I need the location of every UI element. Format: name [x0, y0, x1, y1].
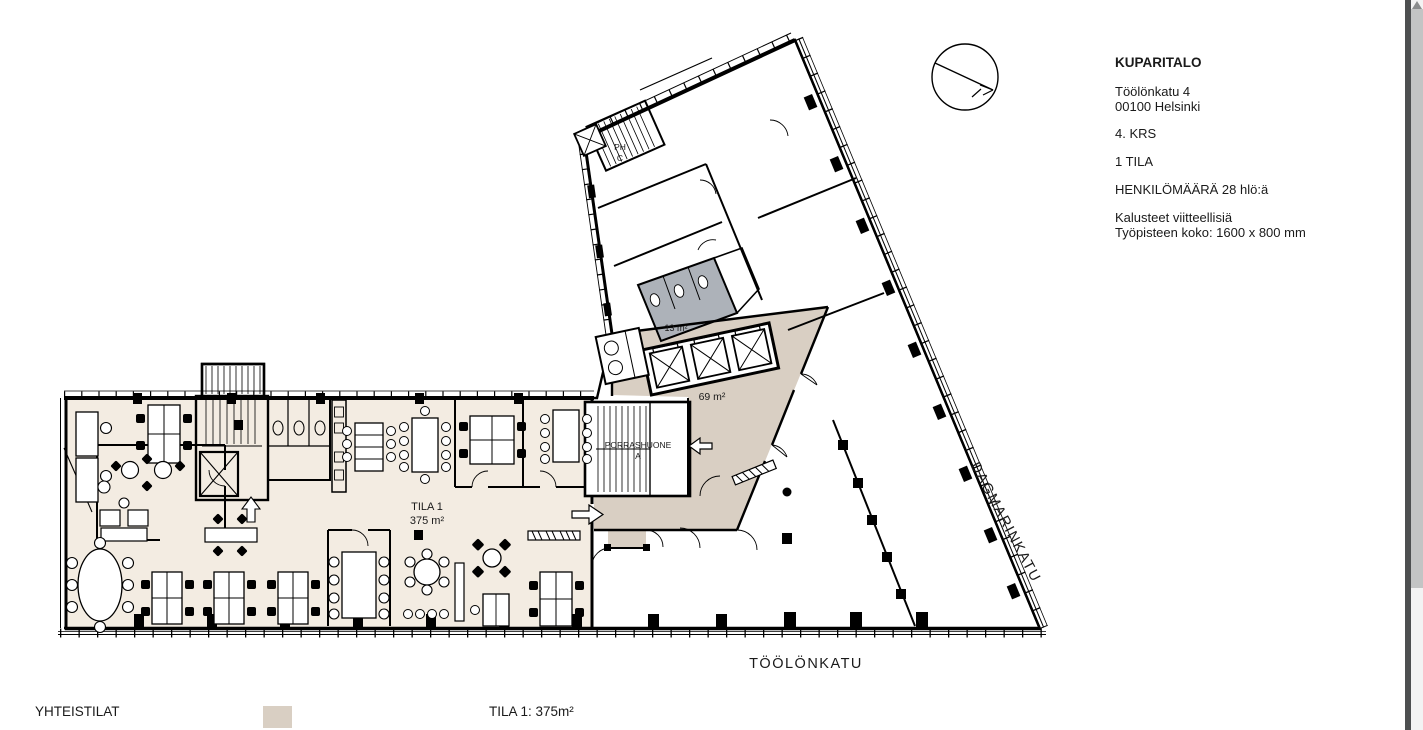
tila1-area-label: 375 m² — [410, 515, 445, 527]
workstation-size-note: Työpisteen koko: 1600 x 800 mm — [1115, 225, 1306, 240]
meeting-table — [541, 410, 592, 464]
wc-area-label: 13 m² — [664, 323, 687, 333]
address-city: 00100 Helsinki — [1115, 99, 1200, 114]
cabinet — [455, 563, 464, 621]
street-label-toolonkatu: TÖÖLÖNKATU — [749, 654, 863, 672]
lobby-area-label: 69 m² — [699, 391, 726, 403]
common-area-vestibule — [608, 496, 646, 548]
furniture-note: Kalusteet viitteellisiä — [1115, 210, 1232, 225]
legend-common-area-swatch — [263, 706, 292, 728]
scrollbar-up-arrow-icon[interactable] — [1412, 1, 1422, 9]
stairwell-a: PORRASHUONE A — [585, 402, 690, 496]
stairwell-a-label: PORRASHUONE — [605, 440, 672, 450]
legend-tila1-summary: TILA 1: 375m² — [489, 704, 574, 719]
scrollbar-thumb[interactable] — [1411, 9, 1423, 588]
building-name: KUPARITALO — [1115, 55, 1385, 70]
stairwell-a-letter: A — [635, 451, 641, 461]
stairwell-c-label: PH — [614, 142, 626, 152]
stairwell-c-letter: C — [617, 153, 623, 163]
floorplan-page: PORRASHUONE A — [0, 0, 1423, 730]
space-count-label: 1 TILA — [1115, 154, 1385, 169]
wc-small-lobby — [596, 328, 649, 384]
title-block: KUPARITALO Töölönkatu 4 00100 Helsinki 4… — [1115, 55, 1385, 240]
floor-label: 4. KRS — [1115, 126, 1385, 141]
capacity-label: HENKILÖMÄÄRÄ 28 hlö:ä — [1115, 182, 1385, 197]
north-arrow — [932, 44, 998, 110]
address-street: Töölönkatu 4 — [1115, 84, 1190, 99]
tila1-label: TILA 1 — [411, 501, 443, 513]
legend-shared-spaces-label: YHTEISTILAT — [35, 704, 120, 719]
